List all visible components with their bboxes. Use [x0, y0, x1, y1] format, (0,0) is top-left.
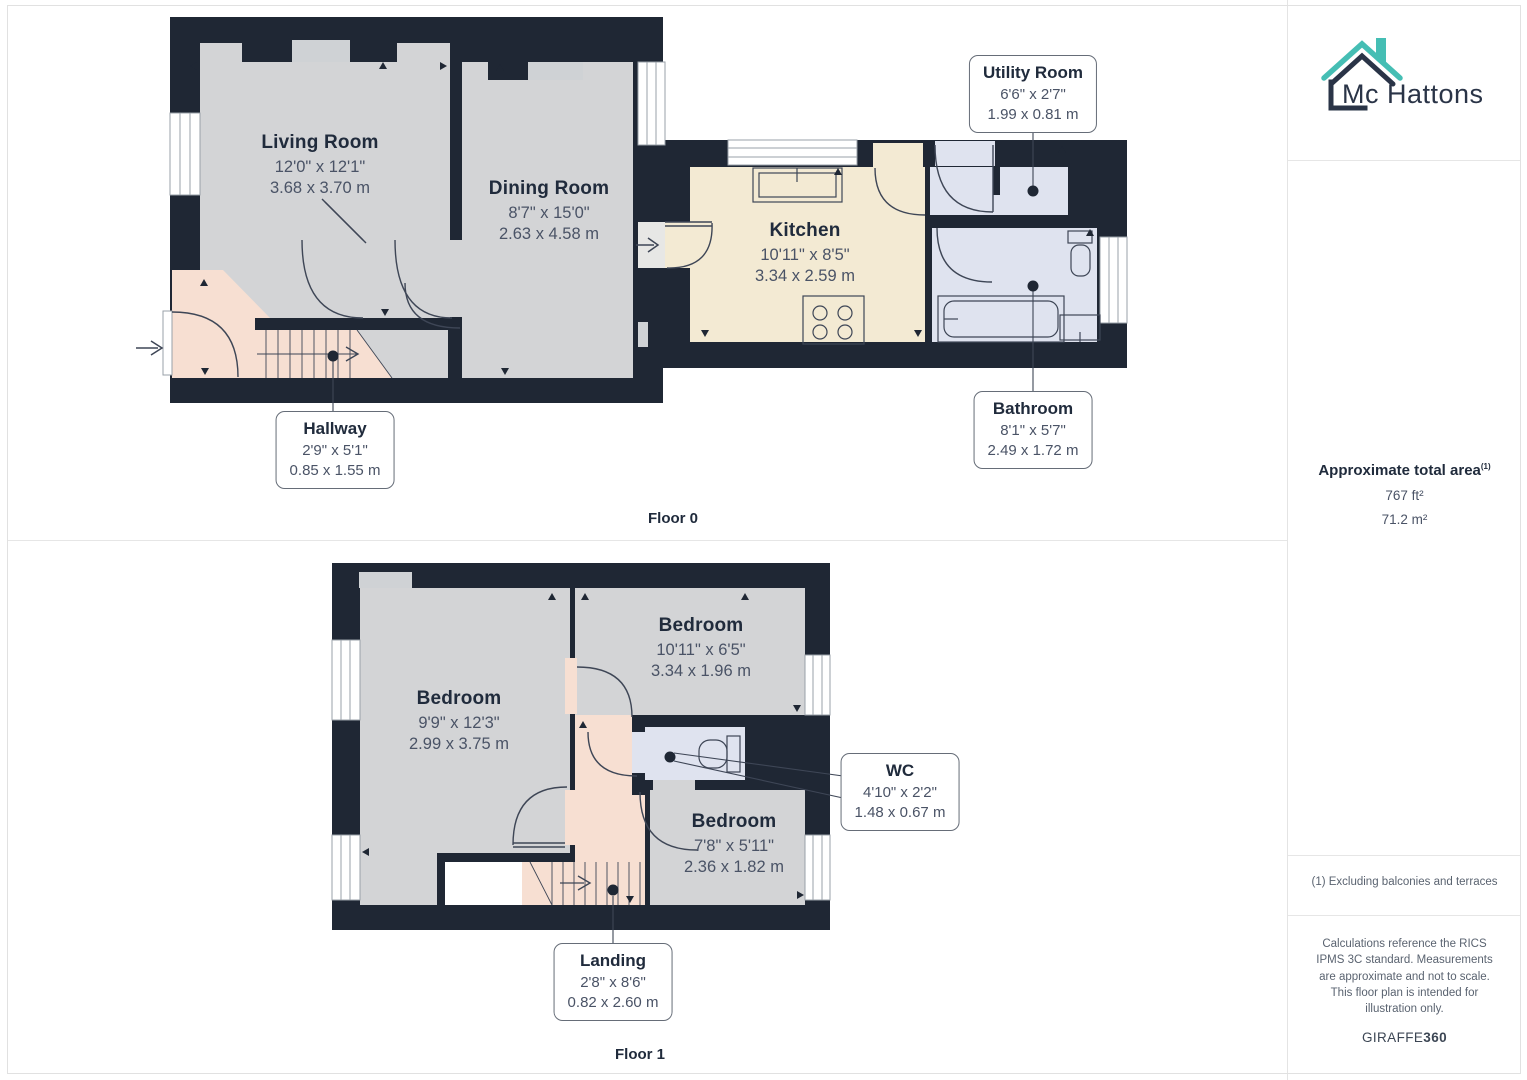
footnote-marker: (1) [1481, 462, 1491, 471]
callout-name: Bathroom [988, 399, 1079, 419]
callout-wc: WC 4'10" x 2'2"1.48 x 0.67 m [841, 753, 960, 831]
room-name: Bedroom [684, 811, 784, 833]
floor0-caption: Floor 0 [648, 510, 698, 527]
roof-shape [1324, 44, 1400, 78]
callout-hallway: Hallway 2'9" x 5'1"0.85 x 1.55 m [276, 411, 395, 489]
total-area-label: Approximate total area [1318, 462, 1481, 479]
provider-logo: GIRAFFE360 [1288, 1030, 1521, 1045]
provider-suffix: 360 [1423, 1030, 1447, 1045]
floor1-caption: Floor 1 [615, 1046, 665, 1063]
room-dim-imperial: 8'7" x 15'0" [508, 204, 589, 222]
room-name: Dining Room [489, 178, 609, 200]
room-dim-metric: 2.36 x 1.82 m [684, 858, 784, 876]
disclaimer-text: Calculations reference the RICS IPMS 3C … [1310, 936, 1499, 1018]
room-dim-imperial: 12'0" x 12'1" [275, 158, 366, 176]
brand-name: Mc Hattons [1342, 79, 1484, 109]
sidebar-divider-mid [1288, 855, 1521, 856]
callout-name: Hallway [290, 419, 381, 439]
room-dim-imperial: 10'11" x 8'5" [760, 246, 849, 264]
callout-name: Landing [568, 951, 659, 971]
room-dim-metric: 3.34 x 2.59 m [755, 267, 855, 285]
room-label-living: Living Room 12'0" x 12'1"3.68 x 3.70 m [261, 132, 378, 199]
room-name: Living Room [261, 132, 378, 154]
room-dim-metric: 2.63 x 4.58 m [499, 225, 599, 243]
room-name: Bedroom [651, 615, 751, 637]
sidebar-divider-top [1288, 160, 1521, 161]
total-area-imperial: 767 ft² [1288, 488, 1521, 503]
room-dim-imperial: 9'9" x 12'3" [418, 714, 499, 732]
room-dim-imperial: 10'11" x 6'5" [656, 641, 745, 659]
room-label-bedroom-1: Bedroom 9'9" x 12'3"2.99 x 3.75 m [409, 688, 509, 755]
callout-name: Utility Room [983, 63, 1083, 83]
area-footnote: (1) Excluding balconies and terraces [1300, 876, 1509, 888]
callout-name: WC [855, 761, 946, 781]
room-label-bedroom-2: Bedroom 10'11" x 6'5"3.34 x 1.96 m [651, 615, 751, 682]
room-name: Bedroom [409, 688, 509, 710]
room-dim-metric: 3.34 x 1.96 m [651, 662, 751, 680]
house-logo-icon: Mc Hattons [1318, 30, 1498, 122]
room-label-kitchen: Kitchen 10'11" x 8'5"3.34 x 2.59 m [755, 220, 855, 287]
brand-logo: Mc Hattons [1318, 30, 1498, 127]
room-dim-metric: 2.99 x 3.75 m [409, 735, 509, 753]
floor1-section: Bedroom 9'9" x 12'3"2.99 x 3.75 m Bedroo… [0, 540, 1287, 1080]
callout-landing: Landing 2'8" x 8'6"0.82 x 2.60 m [554, 943, 673, 1021]
room-dim-metric: 3.68 x 3.70 m [270, 179, 370, 197]
floor0-section: Living Room 12'0" x 12'1"3.68 x 3.70 m D… [0, 0, 1287, 540]
room-name: Kitchen [755, 220, 855, 242]
total-area-metric: 71.2 m² [1288, 512, 1521, 527]
info-sidebar: Mc Hattons Approximate total area(1) 767… [1287, 0, 1527, 1080]
floorplan-canvas: Living Room 12'0" x 12'1"3.68 x 3.70 m D… [0, 0, 1287, 1080]
room-dim-imperial: 7'8" x 5'11" [694, 837, 774, 855]
callout-utility-room: Utility Room 6'6" x 2'7"1.99 x 0.81 m [969, 55, 1097, 133]
sidebar-divider-bottom [1288, 915, 1521, 916]
room-label-bedroom-3: Bedroom 7'8" x 5'11"2.36 x 1.82 m [684, 811, 784, 878]
provider-name: GIRAFFE [1362, 1030, 1423, 1045]
total-area-block: Approximate total area(1) 767 ft² 71.2 m… [1288, 462, 1521, 527]
callout-bathroom: Bathroom 8'1" x 5'7"2.49 x 1.72 m [974, 391, 1093, 469]
room-label-dining: Dining Room 8'7" x 15'0"2.63 x 4.58 m [489, 178, 609, 245]
